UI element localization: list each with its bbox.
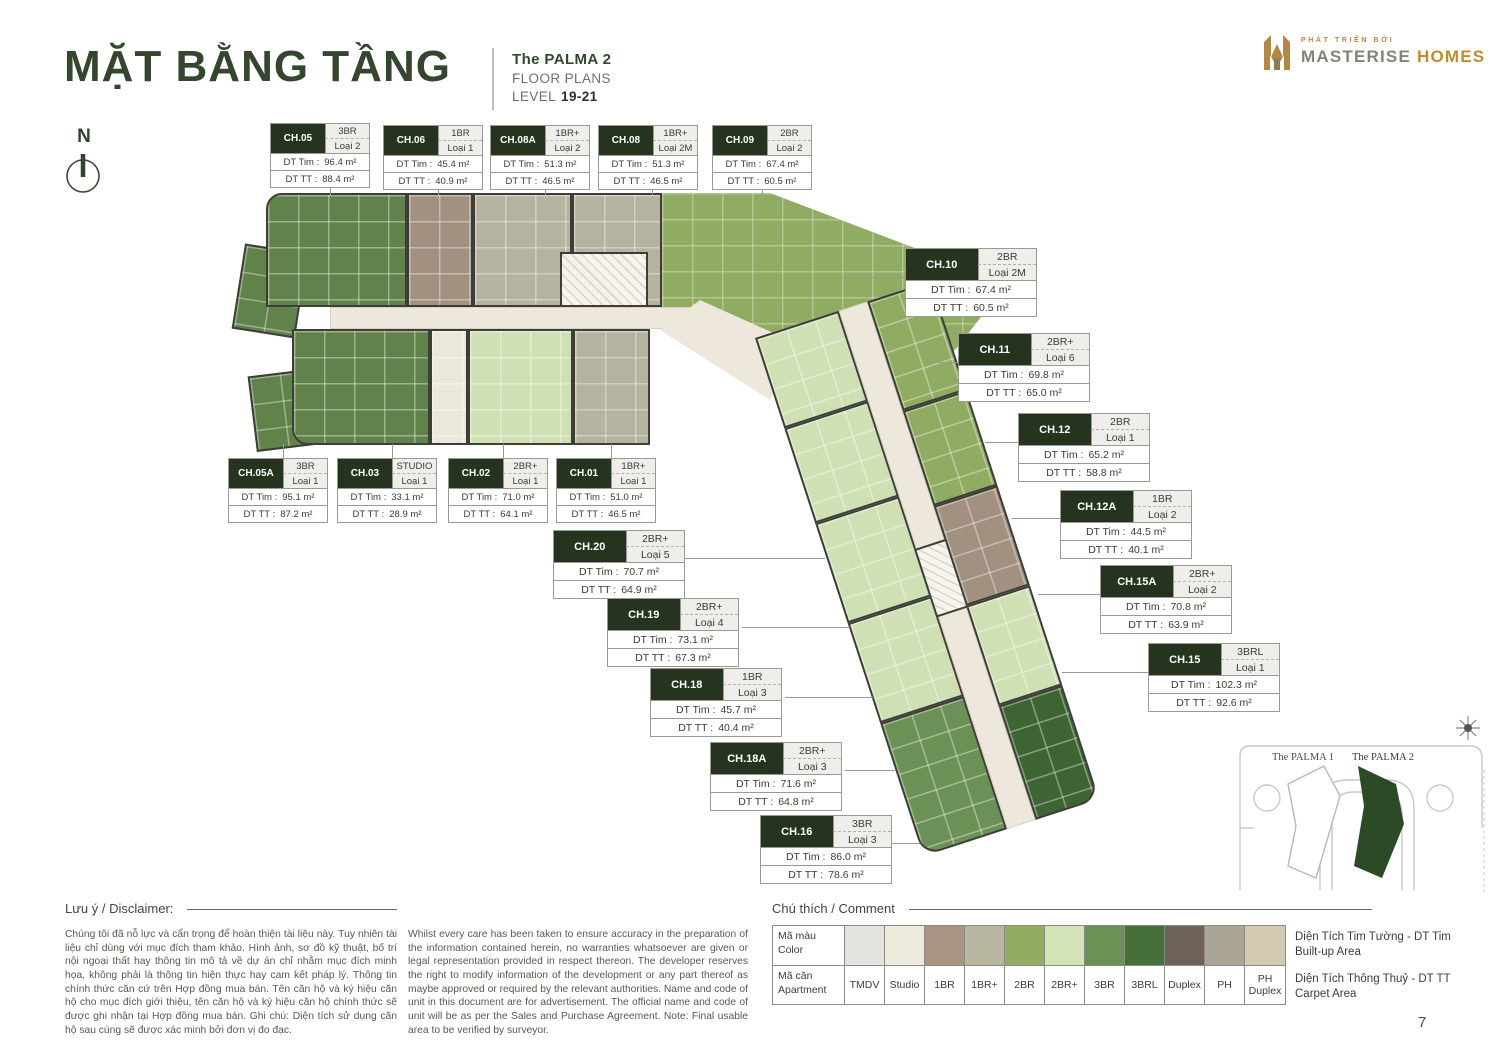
- legend-name: Studio: [885, 966, 925, 1004]
- unit-label-ch19: CH.19 2BR+ Loại 4 DT Tim :73.1 m² DT TT …: [607, 598, 739, 667]
- leader-line: [892, 843, 920, 844]
- unit-code: CH.05: [271, 124, 325, 153]
- project-name: The PALMA 2: [512, 50, 611, 70]
- disclaimer-title: Lưu ý / Disclaimer:: [65, 901, 397, 916]
- legend-swatch-duplex: [1165, 926, 1205, 966]
- unit-dt-tt: DT TT :88.4 m²: [271, 170, 369, 187]
- legend-swatch-2brp: [1045, 926, 1085, 966]
- unit-label-ch15: CH.15 3BRL Loại 1 DT Tim :102.3 m² DT TT…: [1148, 643, 1280, 712]
- legend-color-header: Mã màuColor: [773, 926, 845, 966]
- plan-unit-ch02: [468, 329, 573, 445]
- legend-swatch-3br: [1085, 926, 1125, 966]
- legend-name: 1BR+: [965, 966, 1005, 1004]
- palma2-building: [1354, 766, 1404, 878]
- legend-swatch-1brp: [965, 926, 1005, 966]
- site-map: The PALMA 1 The PALMA 2: [1232, 700, 1497, 900]
- leader-line: [392, 444, 393, 458]
- unit-label-ch02: CH.02 2BR+ Loại 1 DT Tim :71.0 m² DT TT …: [448, 458, 548, 523]
- legend-swatch-tmdv: [845, 926, 885, 966]
- plan-stair-core: [560, 252, 648, 307]
- leader-line: [985, 442, 1018, 443]
- masterise-logo-icon: [1262, 33, 1292, 71]
- floor-plans-label: FLOOR PLANS: [512, 70, 611, 88]
- legend-name: 1BR: [925, 966, 965, 1004]
- leader-line: [283, 444, 284, 458]
- north-compass: N: [62, 126, 108, 199]
- leader-line: [611, 444, 612, 458]
- legend-name: PH: [1205, 966, 1245, 1004]
- leader-line: [503, 444, 504, 458]
- palma1-label: The PALMA 1: [1272, 752, 1334, 763]
- brochure-page: MẶT BẰNG TẦNG The PALMA 2 FLOOR PLANS LE…: [0, 0, 1500, 1060]
- level-value: 19-21: [561, 89, 598, 104]
- masterise-homes-logo: PHÁT TRIỂN BỞI MASTERISEHOMES: [1262, 33, 1485, 71]
- unit-label-ch18: CH.18 1BR Loại 3 DT Tim :45.7 m² DT TT :…: [650, 668, 782, 737]
- legend-name: Duplex: [1165, 966, 1205, 1004]
- unit-label-ch08: CH.08 1BR+ Loại 2M DT Tim :51.3 m² DT TT…: [598, 125, 698, 190]
- legend-name: 2BR+: [1045, 966, 1085, 1004]
- level-label: LEVEL19-21: [512, 88, 611, 106]
- unit-dt-tim: DT Tim :96.4 m²: [271, 153, 369, 170]
- disclaimer-english: Whilst every care has been taken to ensu…: [408, 928, 748, 1038]
- leader-line: [1012, 518, 1060, 519]
- plan-unit-ch06: [407, 193, 473, 307]
- logo-brand: MASTERISEHOMES: [1301, 47, 1485, 67]
- unit-label-ch10: CH.10 2BR Loại 2M DT Tim :67.4 m² DT TT …: [905, 248, 1037, 317]
- unit-label-ch20: CH.20 2BR+ Loại 5 DT Tim :70.7 m² DT TT …: [553, 530, 685, 599]
- leader-line: [840, 277, 905, 278]
- legend-table: Mã màuColor Mã cănApartment TMDV Studio …: [772, 925, 1286, 1005]
- compass-rose-icon: [1456, 716, 1480, 740]
- unit-label-ch09: CH.09 2BR Loại 2 DT Tim :67.4 m² DT TT :…: [712, 125, 812, 190]
- legend-swatch-1br: [925, 926, 965, 966]
- legend-swatch-phduplex: [1245, 926, 1285, 966]
- page-number: 7: [1418, 1014, 1426, 1031]
- leader-line: [1038, 594, 1100, 595]
- legend-note-builtup: Diện Tích Tim Tường - DT TimBuilt-up Are…: [1295, 930, 1451, 960]
- legend-name: 3BRL: [1125, 966, 1165, 1004]
- legend-swatch-ph: [1205, 926, 1245, 966]
- leader-line: [785, 697, 873, 698]
- leader-line: [928, 362, 958, 363]
- legend-name: PH Duplex: [1245, 966, 1285, 1004]
- plan-unit-ch08a: [473, 193, 572, 307]
- palma2-label: The PALMA 2: [1352, 752, 1414, 763]
- unit-label-ch05: CH.05 3BR Loại 2 DT Tim :96.4 m² DT TT :…: [270, 123, 370, 188]
- legend-apartment-header: Mã cănApartment: [773, 966, 845, 1004]
- legend-name: 2BR: [1005, 966, 1045, 1004]
- plan-unit-ch03: [430, 329, 468, 445]
- page-title: MẶT BẰNG TẦNG: [64, 42, 451, 92]
- header-meta: The PALMA 2 FLOOR PLANS LEVEL19-21: [512, 50, 611, 107]
- leader-line: [845, 770, 895, 771]
- unit-label-ch18a: CH.18A 2BR+ Loại 3 DT Tim :71.6 m² DT TT…: [710, 742, 842, 811]
- north-letter: N: [60, 126, 108, 148]
- legend-swatch-3brl: [1125, 926, 1165, 966]
- unit-label-ch08a: CH.08A 1BR+ Loại 2 DT Tim :51.3 m² DT TT…: [490, 125, 590, 190]
- legend-swatch-2br: [1005, 926, 1045, 966]
- unit-label-ch15a: CH.15A 2BR+ Loại 2 DT Tim :70.8 m² DT TT…: [1100, 565, 1232, 634]
- legend-swatch-studio: [885, 926, 925, 966]
- unit-label-ch06: CH.06 1BR Loại 1 DT Tim :45.4 m² DT TT :…: [383, 125, 483, 190]
- unit-label-ch16: CH.16 3BR Loại 3 DT Tim :86.0 m² DT TT :…: [760, 815, 892, 884]
- unit-type: 3BR: [325, 124, 369, 139]
- logo-tagline: PHÁT TRIỂN BỞI: [1301, 37, 1485, 44]
- leader-line: [685, 558, 825, 559]
- plan-corridor: [330, 307, 700, 329]
- header-divider: [492, 48, 494, 110]
- unit-label-ch11: CH.11 2BR+ Loại 6 DT Tim :69.8 m² DT TT …: [958, 333, 1090, 402]
- legend-note-carpet: Diện Tích Thông Thuỷ - DT TTCarpet Area: [1295, 972, 1451, 1002]
- compass-icon: [62, 148, 108, 194]
- plan-unit-ch05: [266, 193, 407, 307]
- legend-name: TMDV: [845, 966, 885, 1004]
- unit-label-ch12a: CH.12A 1BR Loại 2 DT Tim :44.5 m² DT TT …: [1060, 490, 1192, 559]
- unit-label-ch03: CH.03 STUDIO Loại 1 DT Tim :33.1 m² DT T…: [337, 458, 437, 523]
- disclaimer-vietnamese: Chúng tôi đã nỗ lực và cẩn trọng để hoàn…: [65, 928, 397, 1038]
- leader-line: [742, 627, 850, 628]
- unit-label-ch12: CH.12 2BR Loại 1 DT Tim :65.2 m² DT TT :…: [1018, 413, 1150, 482]
- leader-line: [1062, 672, 1148, 673]
- unit-label-ch01: CH.01 1BR+ Loại 1 DT Tim :51.0 m² DT TT …: [556, 458, 656, 523]
- unit-loai: Loại 2: [325, 139, 369, 153]
- legend-title: Chú thích / Comment: [772, 901, 1372, 916]
- unit-label-ch05a: CH.05A 3BR Loại 1 DT Tim :95.1 m² DT TT …: [228, 458, 328, 523]
- plan-unit-ch05a: [292, 329, 430, 445]
- plan-unit-ch01: [573, 329, 650, 445]
- legend-name: 3BR: [1085, 966, 1125, 1004]
